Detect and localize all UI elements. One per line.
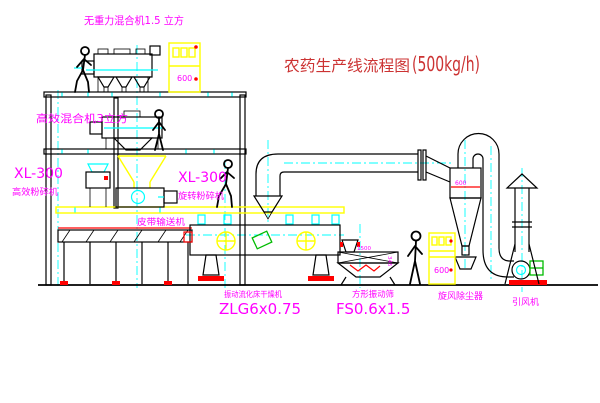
crusher-motor bbox=[164, 191, 177, 203]
flange-circle-icon bbox=[297, 232, 315, 250]
label-crusher-left-name: 高效粉碎机 bbox=[12, 186, 58, 198]
sieve-dim-length: 1500 bbox=[357, 246, 371, 252]
diagram-title: 农药生产线流程图 (500kg/h) bbox=[284, 52, 480, 76]
flange-circle-icon bbox=[217, 232, 235, 250]
sieve-feed-chute bbox=[342, 240, 358, 252]
discharge-chute bbox=[118, 156, 166, 188]
label-crusher-left-model: XL-300 bbox=[14, 166, 63, 182]
control-cabinet-1: 600 bbox=[169, 43, 200, 92]
label-fan: 引风机 bbox=[512, 296, 539, 308]
title-main: 农药生产线流程图 bbox=[284, 57, 410, 75]
label-cyclone: 旋风除尘器 bbox=[438, 290, 483, 302]
label-sieve-name: 方形振动筛 bbox=[352, 289, 394, 300]
cabinet1-mark: 600 bbox=[177, 74, 192, 83]
exhaust-duct bbox=[254, 150, 450, 219]
label-gravity-mixer: 无重力混合机1.5 立方 bbox=[84, 14, 184, 27]
gravity-mixer bbox=[74, 46, 160, 92]
fluid-bed-dryer bbox=[184, 215, 340, 281]
left-crusher bbox=[86, 164, 110, 207]
person-standing-ground bbox=[408, 232, 422, 285]
cyclone-dia-label: 600 bbox=[455, 180, 467, 187]
fan-base bbox=[509, 280, 547, 285]
indicator-lamp-icon bbox=[449, 268, 452, 271]
label-dryer-model: ZLG6x0.75 bbox=[219, 300, 301, 318]
indicator-lamp-icon bbox=[194, 45, 198, 49]
label-crusher-mid-model: XL-300 bbox=[178, 170, 227, 186]
platform bbox=[56, 207, 344, 213]
label-crusher-mid-name: 旋转粉碎机 bbox=[178, 190, 224, 202]
label-belt-conveyor: 皮带输送机 bbox=[137, 216, 185, 228]
induced-draft-fan bbox=[509, 261, 547, 285]
belt-conveyor bbox=[58, 228, 192, 285]
sieve-dim-height: 345 bbox=[386, 256, 392, 267]
square-sieve: 1500 345 bbox=[338, 240, 398, 285]
control-cabinet-2: 600 bbox=[429, 233, 455, 284]
drawing-surface: 600 bbox=[0, 0, 600, 403]
indicator-lamp-icon bbox=[449, 239, 452, 242]
person-standing-mid bbox=[153, 110, 165, 150]
title-capacity: (500kg/h) bbox=[412, 52, 480, 76]
dust-bin bbox=[455, 257, 476, 269]
label-dryer-name: 振动流化床干燥机 bbox=[224, 289, 282, 299]
duct-flange bbox=[418, 150, 421, 180]
nameplate bbox=[252, 231, 272, 249]
cabinet2-mark: 600 bbox=[434, 266, 449, 275]
label-sieve-model: FS0.6x1.5 bbox=[336, 300, 410, 318]
rotary-crusher bbox=[116, 188, 177, 207]
cad-process-flow-diagram: 600 bbox=[0, 0, 600, 403]
indicator-lamp-icon bbox=[194, 77, 198, 81]
label-high-eff-mixer: 高效混合机3立方 bbox=[36, 112, 128, 125]
duct-flange bbox=[423, 150, 426, 180]
